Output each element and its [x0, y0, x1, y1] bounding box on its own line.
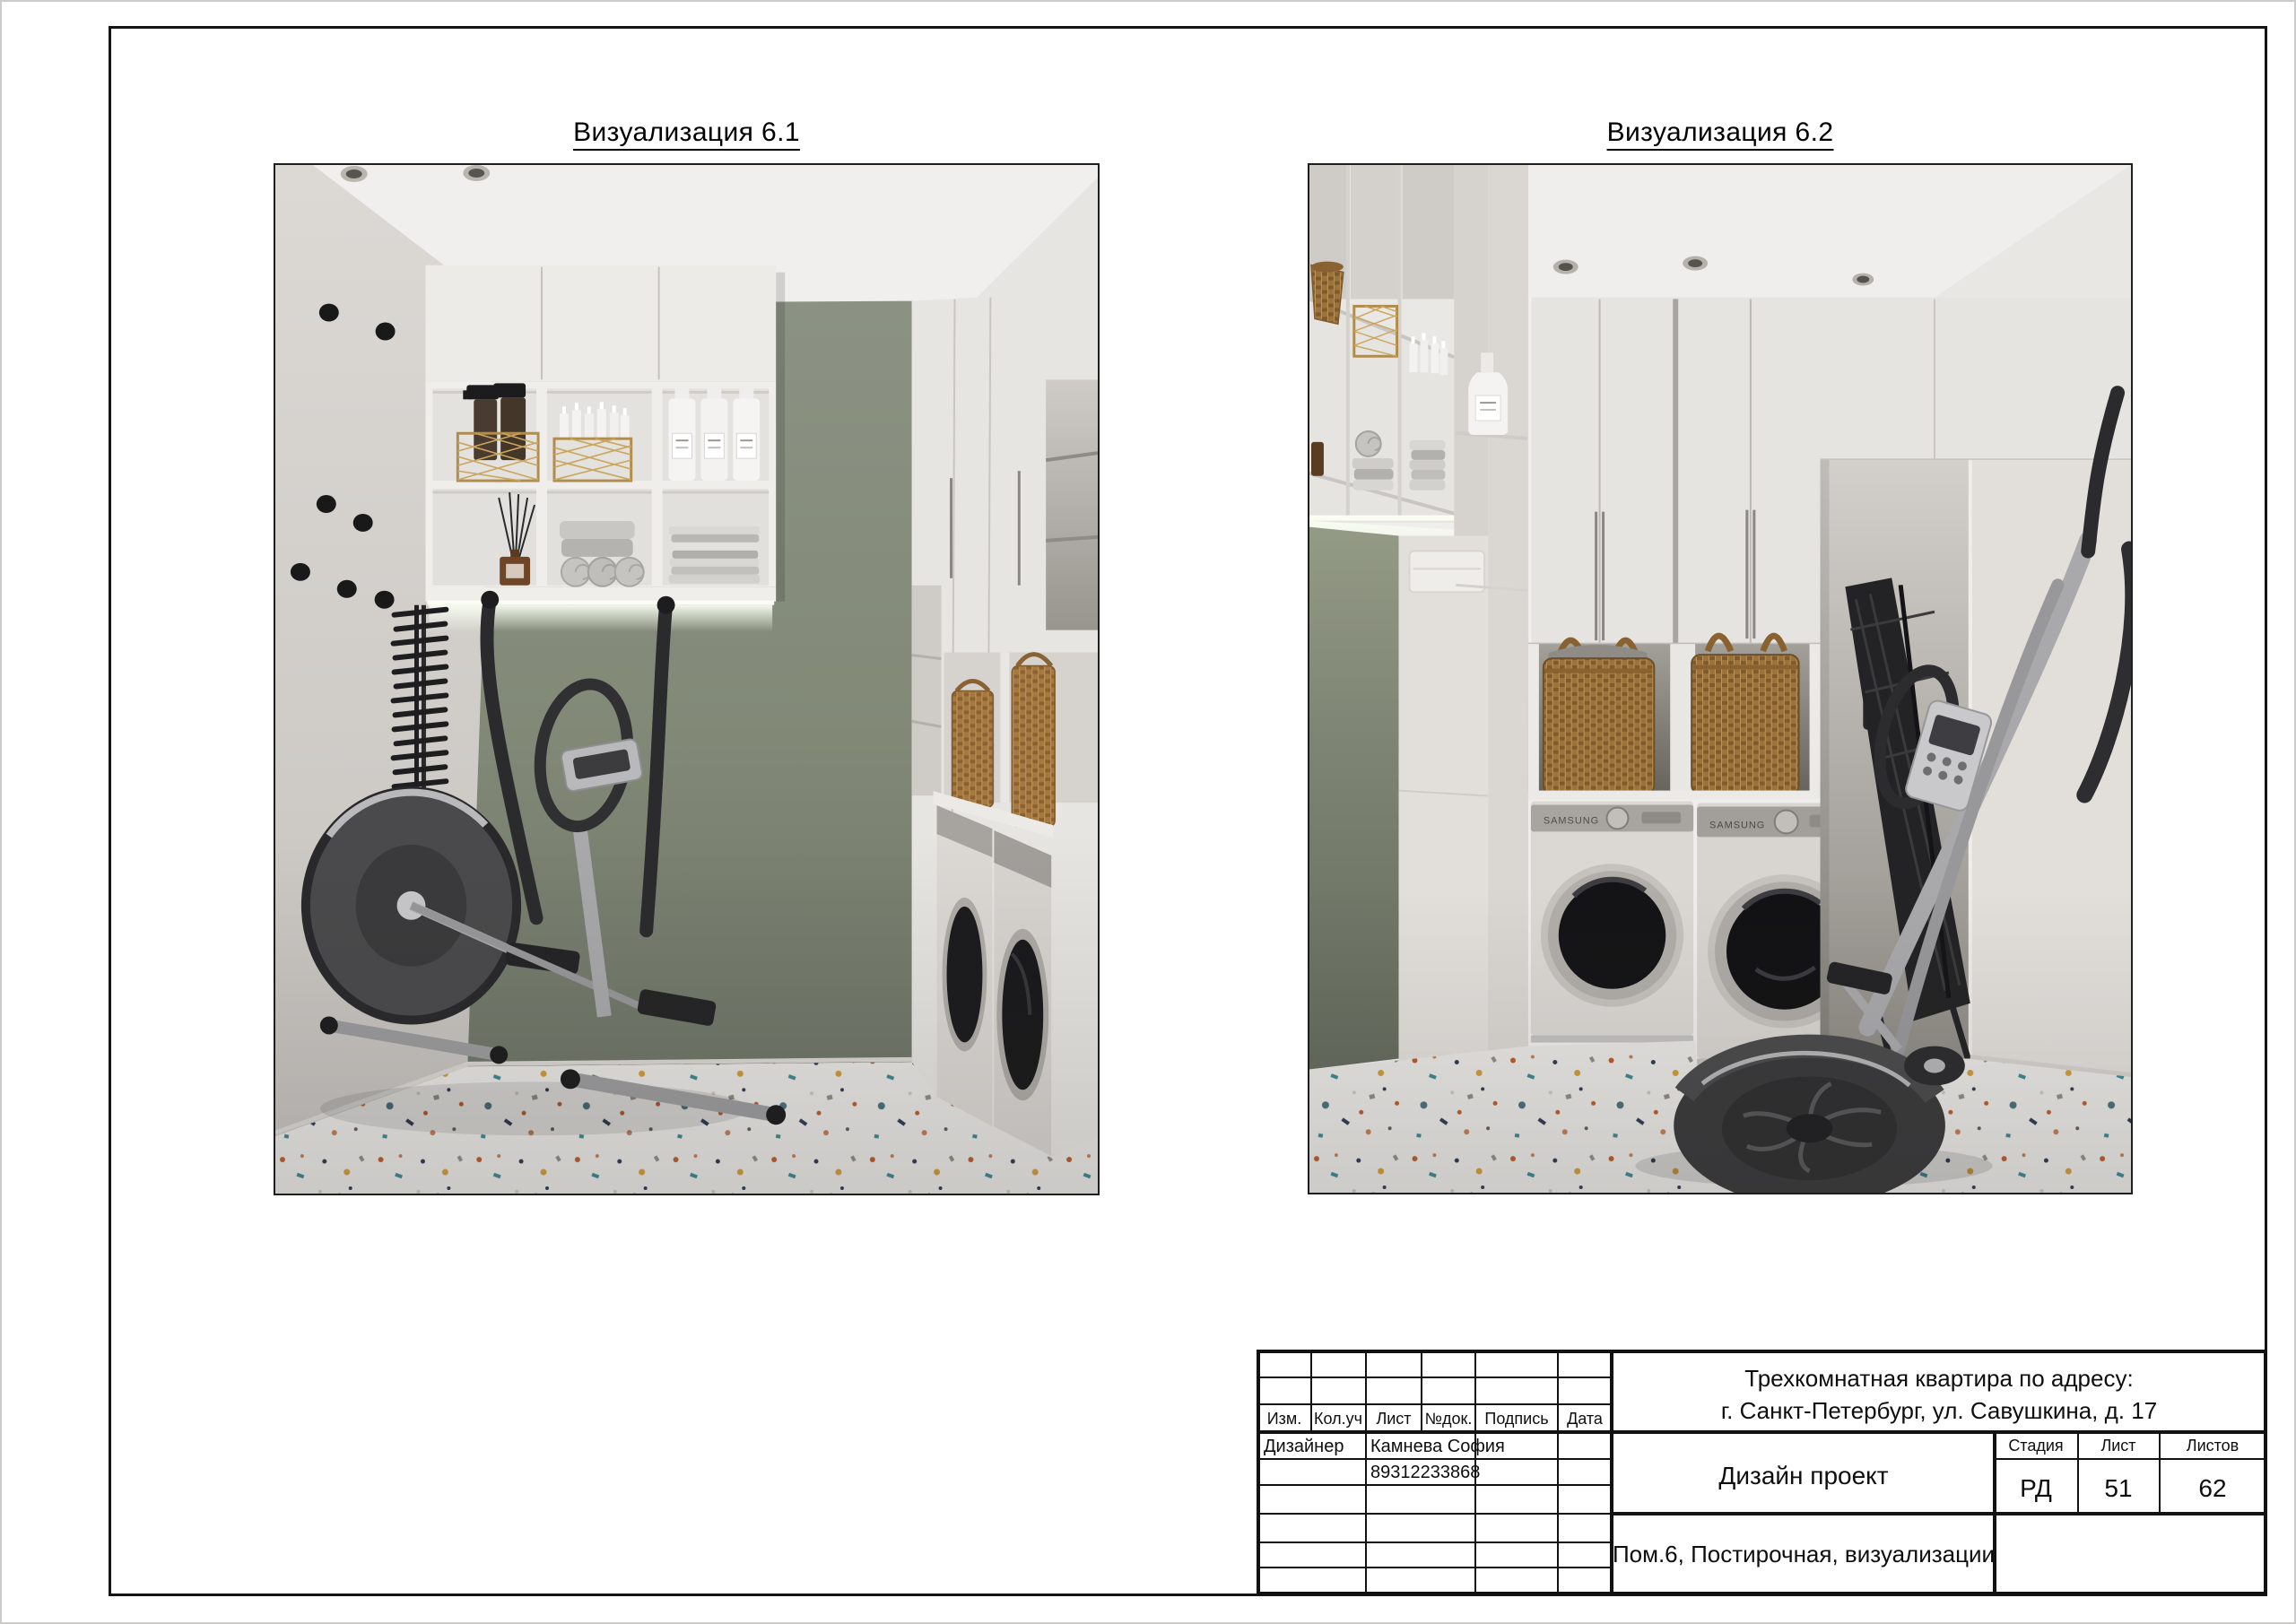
figure-caption-6-1-text: Визуализация 6.1 — [573, 117, 800, 147]
col-ndok: №док. — [1425, 1410, 1473, 1428]
figure-caption-6-2: Визуализация 6.2 — [1308, 111, 2133, 154]
render-6-1-image — [275, 165, 1098, 1194]
project-address-line2: г. Санкт-Петербург, ул. Савушкина, д. 17 — [1721, 1397, 2157, 1424]
vignette — [275, 165, 1098, 1194]
sheet-label: Лист — [2100, 1437, 2135, 1455]
col-koluch: Кол.уч — [1314, 1410, 1362, 1428]
stage-value: РД — [2020, 1474, 2052, 1502]
figure-caption-6-1: Визуализация 6.1 — [274, 111, 1100, 154]
sheets-label: Листов — [2187, 1437, 2239, 1455]
project-address-line1: Трехкомнатная квартира по адресу: — [1744, 1365, 2133, 1392]
figure-caption-6-2-text: Визуализация 6.2 — [1607, 117, 1834, 147]
vignette — [1309, 165, 2131, 1193]
stage-label: Стадия — [2008, 1437, 2063, 1455]
designer-phone: 89312233868 — [1370, 1463, 1480, 1482]
sheets-value: 62 — [2198, 1474, 2226, 1502]
sheet-content: Пом.6, Постирочная, визуализации — [1613, 1541, 1995, 1568]
render-6-1 — [274, 163, 1100, 1195]
render-6-2: SAMSUNG SAMSUNG — [1308, 163, 2133, 1194]
designer-name: Камнева София — [1370, 1437, 1505, 1456]
col-list: Лист — [1376, 1410, 1411, 1428]
designer-role: Дизайнер — [1264, 1437, 1344, 1456]
render-6-2-image: SAMSUNG SAMSUNG — [1309, 165, 2131, 1193]
title-block: Изм. Кол.уч Лист №док. Подпись Дата Диза… — [1257, 1350, 2267, 1595]
col-podpis: Подпись — [1484, 1410, 1548, 1428]
doc-type: Дизайн проект — [1718, 1462, 1888, 1489]
design-sheet-page: { "figures": [ { "label": "Визуализация … — [0, 0, 2296, 1624]
col-izm: Изм. — [1267, 1410, 1302, 1428]
sheet-value: 51 — [2104, 1474, 2132, 1502]
col-data: Дата — [1567, 1410, 1604, 1428]
